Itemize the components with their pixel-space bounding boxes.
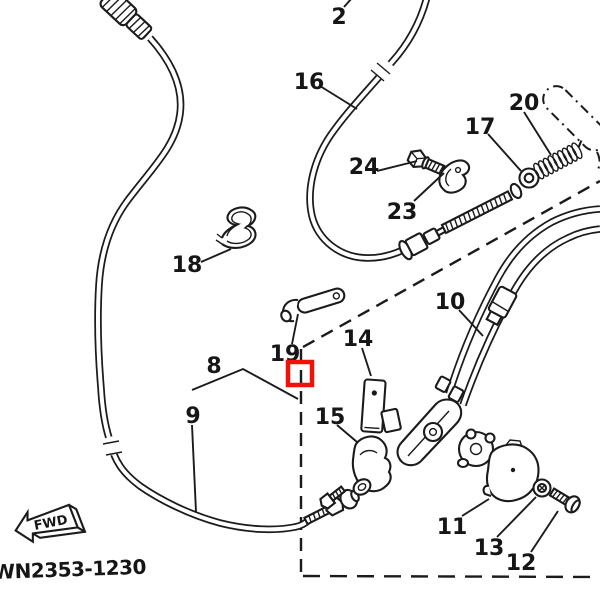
callout-2: 2 [331, 5, 346, 30]
fwd-arrow: FWD [12, 500, 85, 548]
part-12-screw [548, 485, 583, 515]
callout-17: 17 [465, 115, 496, 140]
cable-bundle-10 [435, 209, 600, 426]
callout-16: 16 [294, 70, 325, 95]
callout-15: 15 [315, 405, 346, 430]
footer-drawing-code: WN2353-1230 [0, 555, 146, 584]
callout-8: 8 [206, 354, 221, 379]
handlebar-ghost-outline [538, 81, 600, 171]
part-18-clip [216, 208, 255, 248]
callout-13: 13 [474, 536, 505, 561]
callout-24: 24 [349, 155, 380, 180]
cable-16-threaded-rod [442, 191, 512, 233]
callout-23: 23 [387, 200, 418, 225]
part-14-bracket [361, 379, 401, 432]
callout-20: 20 [509, 91, 540, 116]
callout-11: 11 [437, 515, 468, 540]
part-20-spring [532, 139, 589, 180]
callout-12: 12 [506, 551, 537, 576]
callout-18: 18 [172, 253, 203, 278]
parts-diagram-page: 2 16 20 17 24 23 18 10 14 19 8 9 15 11 1… [0, 0, 600, 600]
cable-9-housing-break [103, 436, 122, 456]
callout-9: 9 [185, 404, 200, 429]
parts-diagram: 2 16 20 17 24 23 18 10 14 19 8 9 15 11 1… [0, 0, 600, 600]
part-13-nut [534, 480, 551, 497]
cable-9-top-adjuster [98, 0, 154, 42]
callout-14: 14 [343, 327, 374, 352]
throttle-arm-plate [398, 400, 462, 466]
callout-10: 10 [435, 290, 466, 315]
part-19-joint-lever [279, 287, 346, 323]
